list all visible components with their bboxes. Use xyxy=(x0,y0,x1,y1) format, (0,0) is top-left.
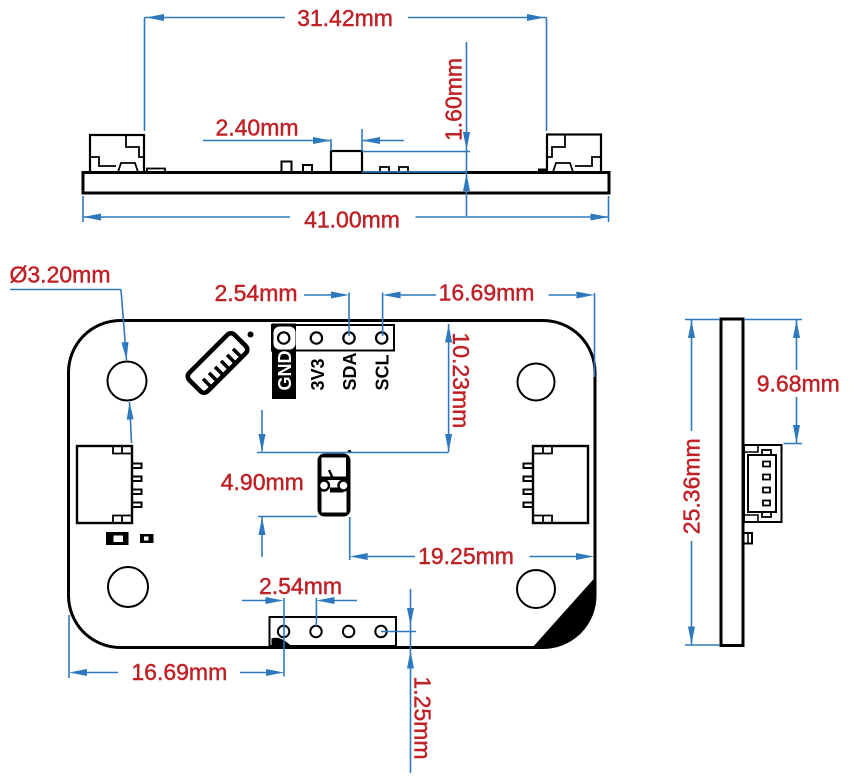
svg-text:SDA: SDA xyxy=(340,352,360,390)
svg-text:1.25mm: 1.25mm xyxy=(410,676,436,759)
svg-text:25.36mm: 25.36mm xyxy=(679,438,705,534)
svg-text:4.90mm: 4.90mm xyxy=(221,469,304,495)
svg-text:31.42mm: 31.42mm xyxy=(297,5,393,31)
svg-text:16.69mm: 16.69mm xyxy=(439,280,535,306)
svg-text:16.69mm: 16.69mm xyxy=(131,659,227,685)
svg-text:41.00mm: 41.00mm xyxy=(304,206,400,232)
svg-text:2.40mm: 2.40mm xyxy=(215,115,298,141)
svg-text:9.68mm: 9.68mm xyxy=(757,371,840,397)
svg-text:1.60mm: 1.60mm xyxy=(441,58,467,141)
svg-text:SCL: SCL xyxy=(372,354,392,390)
svg-text:19.25mm: 19.25mm xyxy=(418,543,514,569)
svg-text:10.23mm: 10.23mm xyxy=(448,332,474,428)
svg-text:2.54mm: 2.54mm xyxy=(214,280,297,306)
svg-text:3V3: 3V3 xyxy=(308,358,328,390)
svg-text:Ø3.20mm: Ø3.20mm xyxy=(10,262,111,288)
svg-text:GND: GND xyxy=(275,351,295,391)
svg-text:2.54mm: 2.54mm xyxy=(259,573,342,599)
